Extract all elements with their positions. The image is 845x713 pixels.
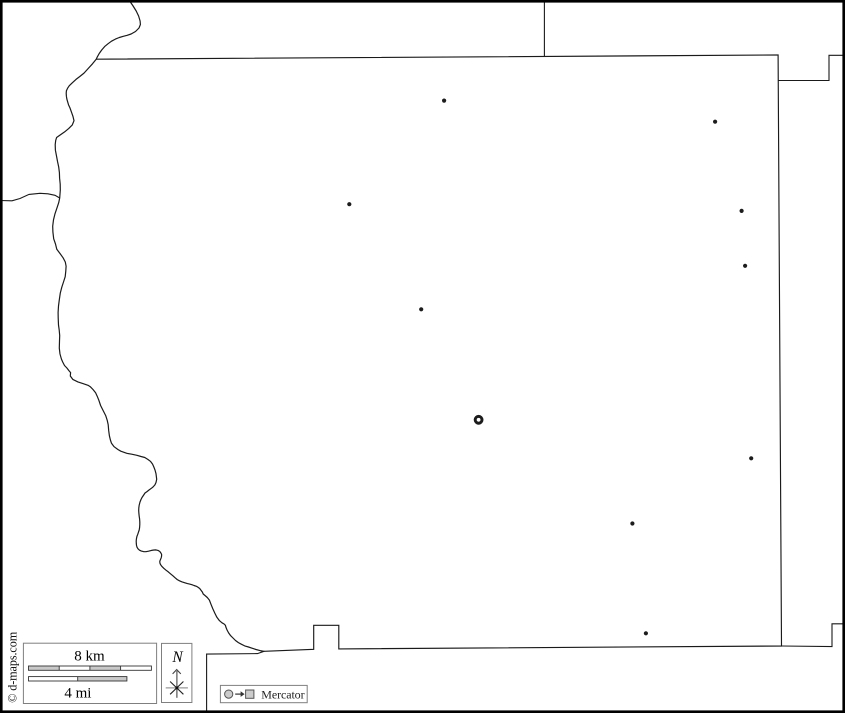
svg-text:4 mi: 4 mi [64, 686, 91, 702]
svg-text:Mercator: Mercator [261, 687, 304, 701]
svg-text:N: N [171, 649, 184, 666]
svg-text:© d-maps.com: © d-maps.com [6, 631, 20, 703]
svg-text:8 km: 8 km [74, 649, 105, 665]
